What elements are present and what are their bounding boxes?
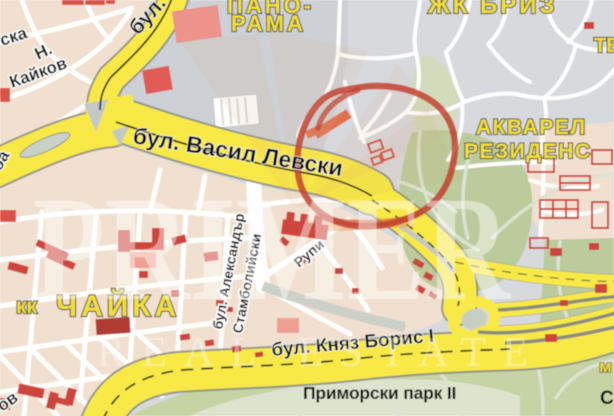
svg-text:С: С xyxy=(600,388,614,409)
svg-text:ТЕ: ТЕ xyxy=(594,35,614,57)
svg-text:м: м xyxy=(599,357,612,376)
svg-text:РЕЗИДЕНС: РЕЗИДЕНС xyxy=(464,140,592,163)
svg-text:АКВАРЕЛ: АКВАРЕЛ xyxy=(476,116,587,139)
svg-text:PRIMER: PRIMER xyxy=(33,166,511,332)
svg-text:РАМА: РАМА xyxy=(231,11,306,36)
svg-text:REAL ESTATE: REAL ESTATE xyxy=(97,330,528,376)
svg-text:ЖК БРИЗ: ЖК БРИЗ xyxy=(427,0,558,19)
svg-text:Приморски парк II: Приморски парк II xyxy=(303,383,456,403)
